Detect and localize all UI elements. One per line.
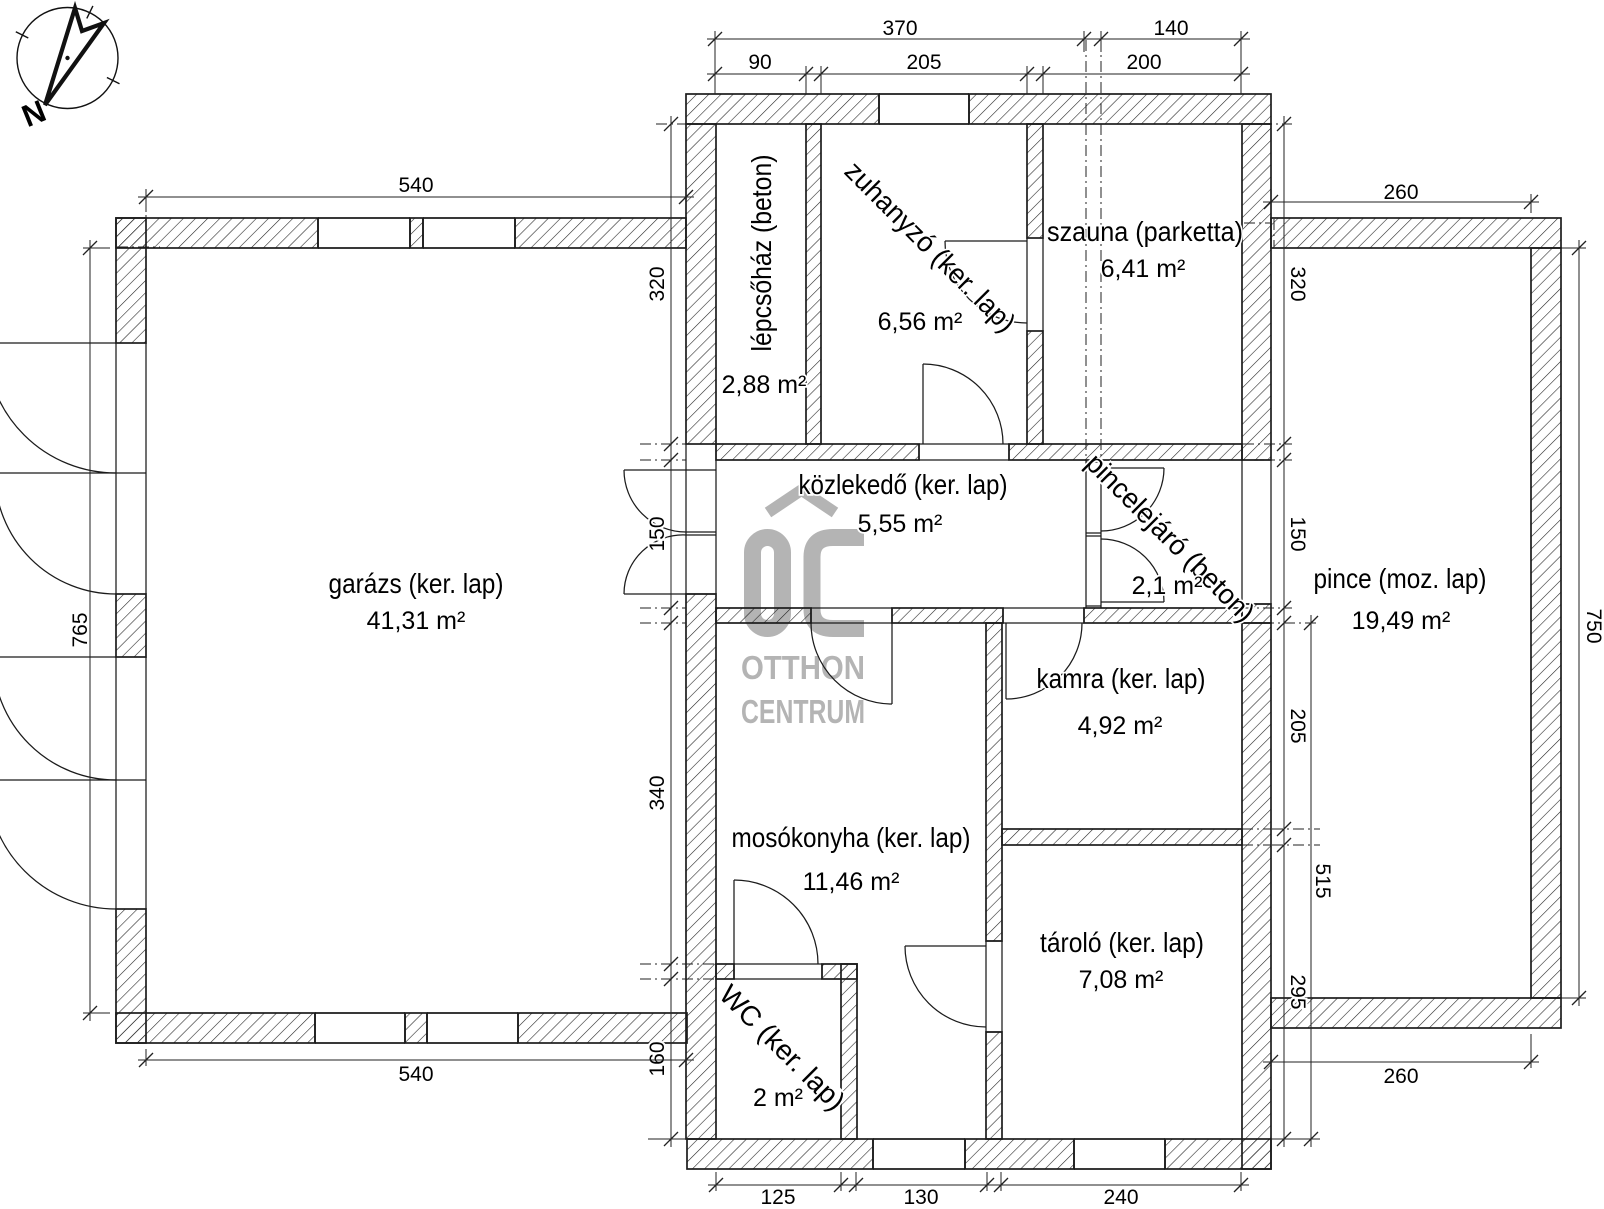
svg-text:370: 370 [882, 17, 917, 40]
svg-text:6,41 m²: 6,41 m² [1101, 255, 1186, 283]
svg-text:205: 205 [906, 51, 941, 74]
svg-text:295: 295 [1286, 974, 1309, 1009]
svg-text:130: 130 [903, 1186, 938, 1209]
svg-text:41,31 m²: 41,31 m² [367, 607, 466, 635]
svg-text:540: 540 [398, 174, 433, 197]
svg-text:tároló (ker. lap): tároló (ker. lap) [1040, 927, 1204, 958]
svg-text:320: 320 [646, 266, 669, 301]
svg-text:90: 90 [748, 51, 771, 74]
svg-text:260: 260 [1383, 1065, 1418, 1088]
svg-text:240: 240 [1103, 1186, 1138, 1209]
svg-text:11,46 m²: 11,46 m² [803, 868, 900, 896]
svg-text:320: 320 [1286, 266, 1309, 301]
svg-text:19,49 m²: 19,49 m² [1352, 607, 1451, 635]
svg-text:540: 540 [398, 1063, 433, 1086]
svg-text:150: 150 [646, 516, 669, 551]
svg-text:7,08 m²: 7,08 m² [1079, 966, 1164, 994]
svg-text:2,88 m²: 2,88 m² [722, 371, 807, 399]
svg-text:közlekedő (ker. lap): közlekedő (ker. lap) [799, 469, 1008, 500]
svg-text:kamra (ker. lap): kamra (ker. lap) [1037, 663, 1206, 694]
svg-text:260: 260 [1383, 181, 1418, 204]
svg-text:szauna (parketta): szauna (parketta) [1047, 216, 1243, 247]
svg-text:150: 150 [1286, 516, 1309, 551]
svg-text:140: 140 [1153, 17, 1188, 40]
svg-text:pince (moz. lap): pince (moz. lap) [1314, 563, 1487, 594]
svg-text:CENTRUM: CENTRUM [741, 693, 865, 730]
svg-text:200: 200 [1126, 51, 1161, 74]
svg-text:2,1 m²: 2,1 m² [1132, 572, 1203, 600]
svg-text:125: 125 [760, 1186, 795, 1209]
svg-text:765: 765 [69, 612, 92, 647]
svg-text:garázs (ker. lap): garázs (ker. lap) [329, 568, 504, 599]
svg-text:4,92 m²: 4,92 m² [1078, 712, 1163, 740]
svg-text:340: 340 [646, 775, 669, 810]
svg-text:750: 750 [1582, 608, 1604, 643]
svg-text:OTTHON: OTTHON [741, 649, 865, 686]
svg-text:lépcsőház (beton): lépcsőház (beton) [746, 155, 777, 352]
svg-text:160: 160 [646, 1041, 669, 1076]
svg-text:5,55 m²: 5,55 m² [858, 510, 943, 538]
svg-text:mosókonyha (ker. lap): mosókonyha (ker. lap) [732, 822, 971, 853]
svg-text:2 m²: 2 m² [753, 1084, 803, 1112]
svg-text:205: 205 [1286, 708, 1309, 743]
svg-text:6,56 m²: 6,56 m² [878, 308, 963, 336]
svg-text:515: 515 [1311, 863, 1334, 898]
